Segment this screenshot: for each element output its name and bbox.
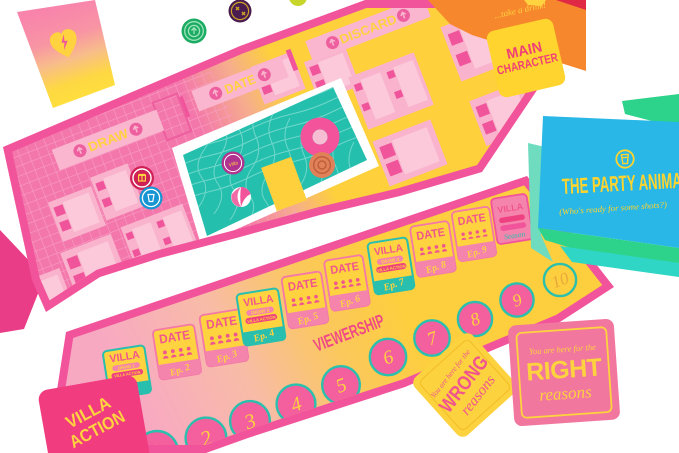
svg-text:RIGHT: RIGHT	[525, 353, 602, 386]
svg-text:reasons: reasons	[539, 382, 593, 405]
